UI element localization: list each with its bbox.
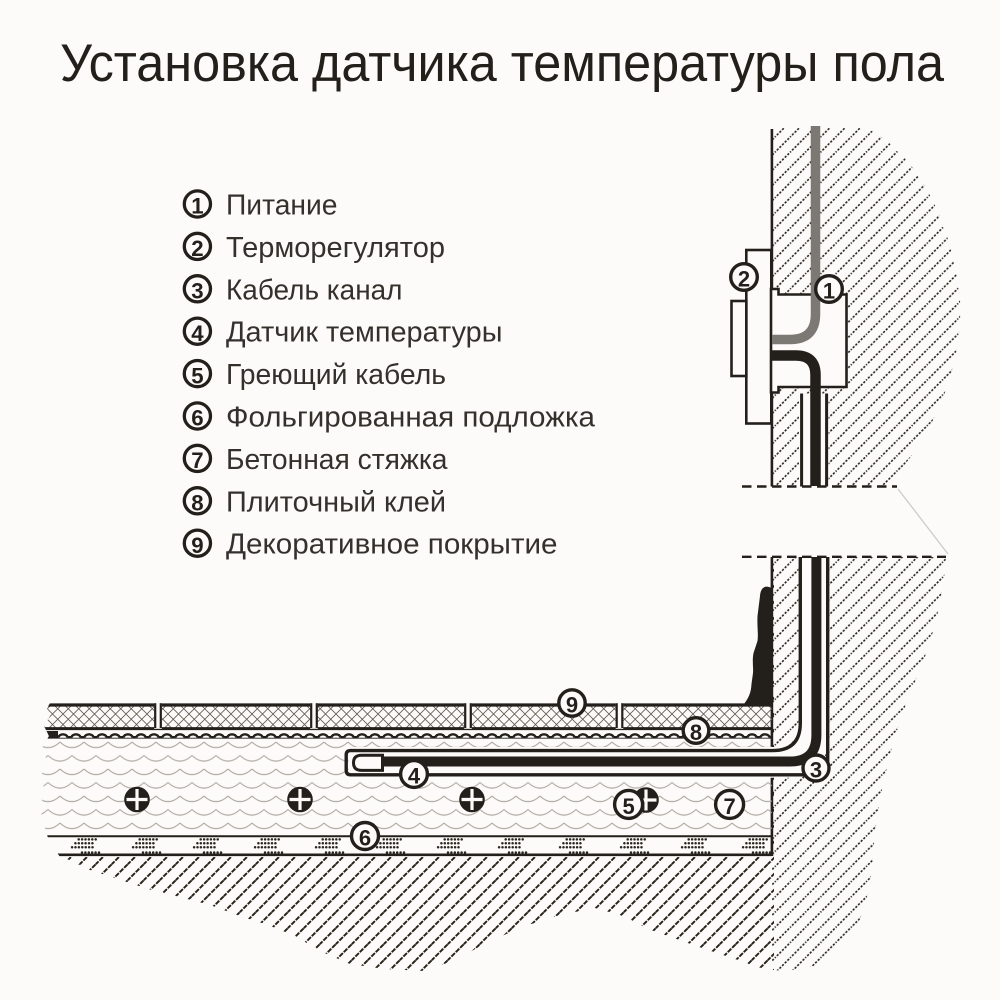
svg-text:7: 7 (723, 794, 735, 819)
svg-text:6: 6 (359, 825, 371, 850)
svg-text:Датчик температуры: Датчик температуры (226, 317, 503, 349)
svg-text:2: 2 (738, 266, 750, 291)
svg-text:Плиточный клей: Плиточный клей (226, 486, 446, 518)
svg-text:Установка датчика температуры: Установка датчика температуры пола (60, 34, 944, 93)
svg-text:Декоративное покрытие: Декоративное покрытие (226, 529, 558, 561)
svg-text:Кабель канал: Кабель канал (226, 274, 403, 306)
svg-text:1: 1 (191, 194, 203, 219)
svg-text:2: 2 (191, 236, 203, 261)
svg-text:3: 3 (191, 279, 203, 304)
svg-text:Терморегулятор: Терморегулятор (226, 232, 445, 264)
svg-text:8: 8 (690, 720, 702, 745)
svg-text:8: 8 (191, 491, 203, 516)
svg-text:5: 5 (191, 363, 203, 388)
svg-text:Бетонная стяжка: Бетонная стяжка (226, 444, 448, 476)
svg-text:7: 7 (191, 448, 203, 473)
svg-text:Питание: Питание (226, 190, 338, 222)
svg-text:5: 5 (622, 794, 634, 819)
svg-text:Фольгированная подложка: Фольгированная подложка (226, 402, 596, 434)
svg-text:4: 4 (191, 321, 204, 346)
svg-text:9: 9 (566, 692, 578, 717)
svg-text:1: 1 (823, 278, 835, 303)
svg-text:9: 9 (191, 533, 203, 558)
svg-text:Греющий кабель: Греющий кабель (226, 359, 446, 391)
svg-text:6: 6 (191, 406, 203, 431)
svg-text:3: 3 (810, 757, 822, 782)
svg-text:4: 4 (408, 763, 421, 788)
